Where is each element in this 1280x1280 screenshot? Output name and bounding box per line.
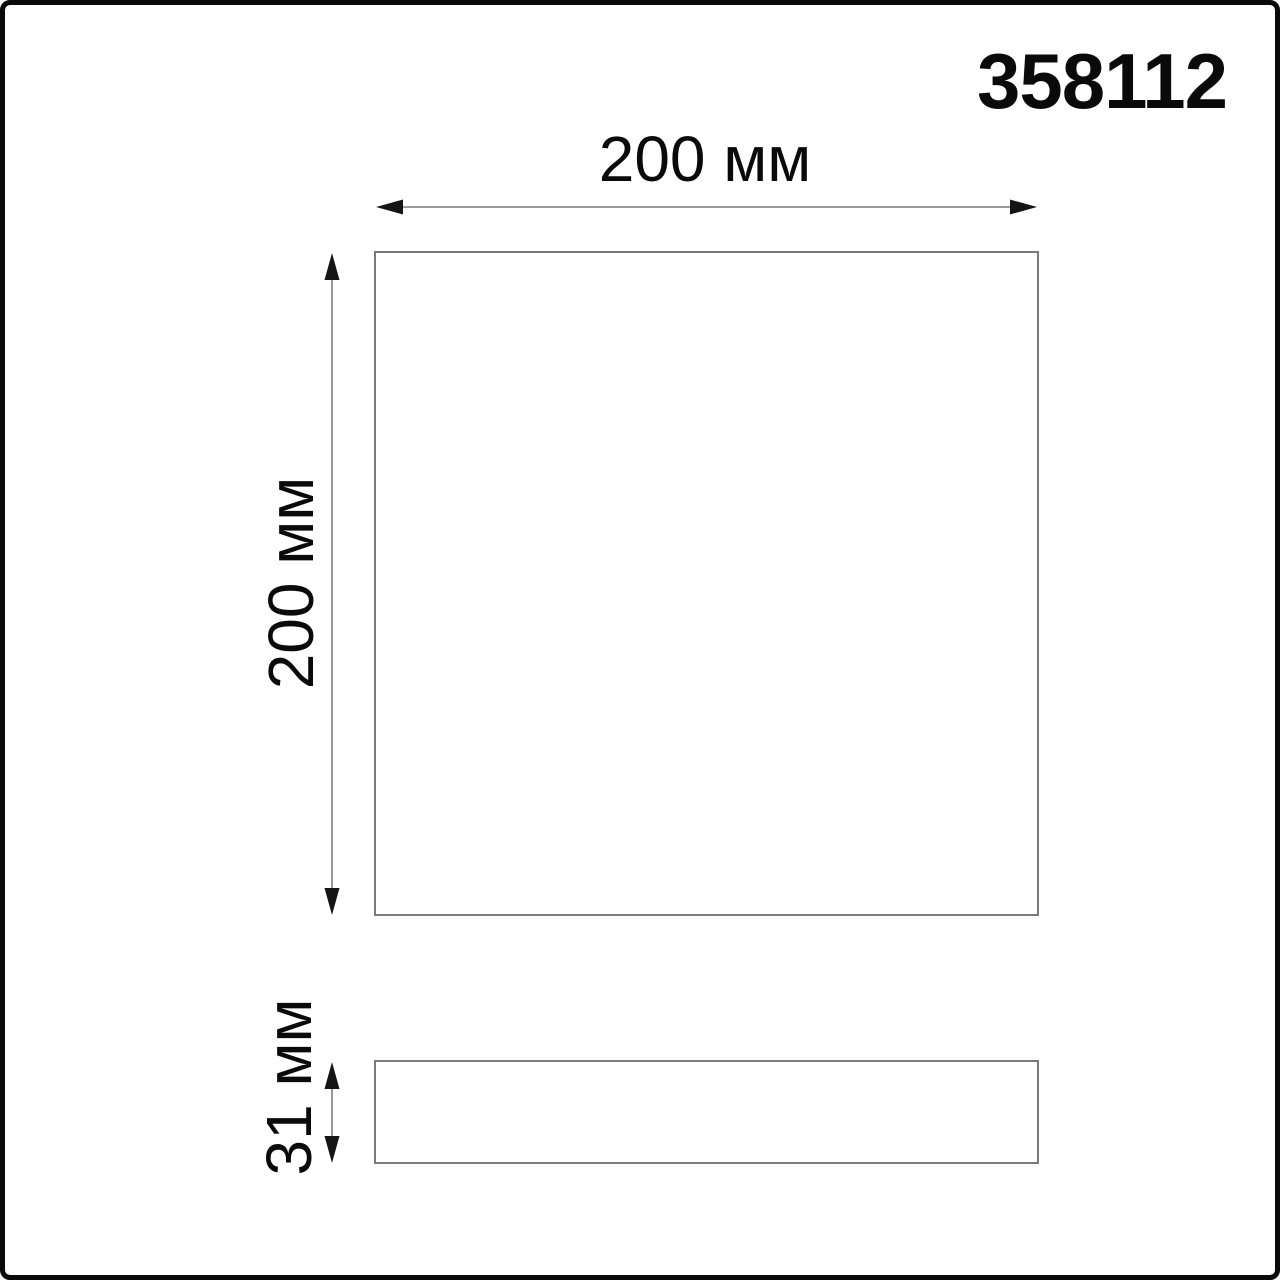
width-dim-arrow-right-icon bbox=[1010, 200, 1037, 215]
height-dim-arrow-bottom-icon bbox=[325, 888, 340, 915]
side-view-outline bbox=[375, 1061, 1038, 1163]
height-dim-arrow-top-icon bbox=[325, 253, 340, 280]
dimension-drawing bbox=[5, 5, 1280, 1280]
depth-dim-arrow-bottom-icon bbox=[325, 1136, 340, 1163]
diagram-frame: 358112 200 мм 200 мм 31 мм bbox=[0, 0, 1280, 1280]
front-view-outline bbox=[375, 252, 1038, 915]
depth-dim-arrow-top-icon bbox=[325, 1062, 340, 1089]
width-dim-arrow-left-icon bbox=[376, 200, 403, 215]
